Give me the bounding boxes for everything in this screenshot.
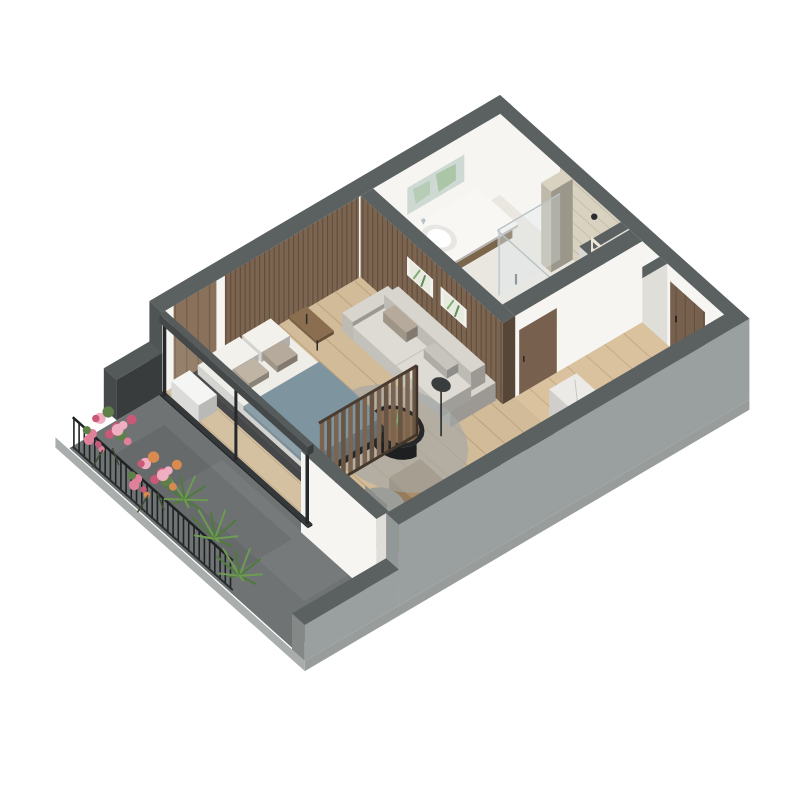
floor-plan-image xyxy=(0,0,800,801)
floor-plan xyxy=(0,0,800,801)
